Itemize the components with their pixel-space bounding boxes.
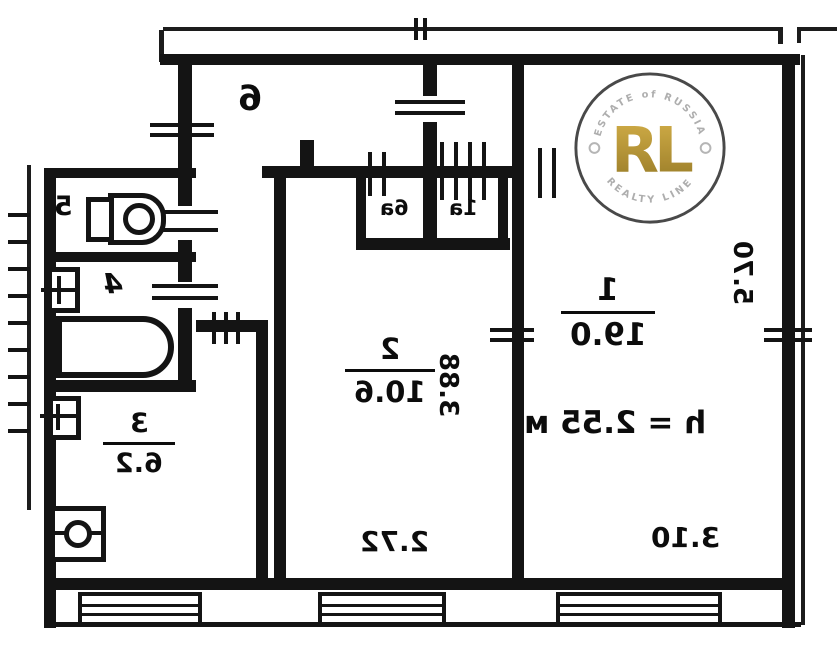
closet-6a-label: 6a bbox=[370, 198, 418, 219]
window-kitchen bbox=[78, 592, 202, 626]
context-line-top bbox=[163, 27, 780, 31]
hatch-tick bbox=[8, 294, 30, 298]
window-glazing-line bbox=[560, 604, 718, 607]
fraction-bar bbox=[345, 369, 435, 372]
toilet-tank bbox=[86, 197, 114, 242]
hatch-tick bbox=[8, 267, 30, 271]
fraction-bar bbox=[561, 311, 655, 314]
realty-line-watermark: ESTATE of RUSSIA REALTY LINE RL bbox=[572, 70, 728, 230]
room1-height-note: h = 2.55 м bbox=[512, 408, 718, 439]
hatch-tick bbox=[8, 321, 30, 325]
window-glazing-line bbox=[82, 604, 198, 607]
entrance-door-hatch bbox=[395, 100, 465, 104]
wall-stub bbox=[300, 140, 314, 166]
closet-vent-hatch bbox=[368, 152, 372, 196]
hatch-tick bbox=[8, 348, 30, 352]
closet-vent-hatch bbox=[468, 142, 472, 200]
wall-tick bbox=[764, 328, 812, 332]
wall-room2-top bbox=[262, 166, 512, 178]
bath-door-hatch bbox=[152, 284, 218, 288]
hatch-tick bbox=[8, 240, 30, 244]
room2-area: 10.6 bbox=[340, 375, 440, 409]
wall-block-bottom bbox=[44, 380, 196, 392]
bathtub bbox=[56, 316, 174, 378]
entrance-door-hatch bbox=[395, 111, 465, 115]
window-glazing-line bbox=[322, 613, 442, 616]
bath-door-hatch bbox=[152, 296, 218, 300]
top-line-tick bbox=[414, 18, 418, 40]
wall-bottom bbox=[44, 578, 795, 590]
hatch-tick bbox=[8, 213, 30, 217]
wall-room1-left bbox=[512, 64, 524, 578]
closet-vent-hatch bbox=[482, 142, 486, 200]
kitchen-area-fraction: 3 6.2 bbox=[98, 408, 180, 479]
top-line-tick bbox=[423, 18, 427, 40]
wall-kitchen-top bbox=[196, 320, 268, 332]
closet-vent-hatch bbox=[440, 142, 444, 200]
room1-area-fraction: 1 19.0 bbox=[558, 272, 658, 353]
kitchen-door-hatch bbox=[224, 312, 228, 344]
stove-burner bbox=[64, 520, 92, 548]
bath-sink-cross bbox=[57, 276, 61, 304]
wall-kitchen-right bbox=[256, 332, 268, 578]
closet-1a-label: 1a bbox=[440, 198, 486, 219]
kitchen-sink bbox=[48, 396, 81, 440]
bathroom-number-label: 4 bbox=[96, 270, 130, 298]
context-line-top-right bbox=[797, 27, 837, 31]
hatch-tick bbox=[8, 402, 30, 406]
wall-closet-bottom bbox=[356, 238, 510, 250]
watermark-monogram: RL bbox=[611, 113, 693, 186]
hatch-tick bbox=[8, 429, 30, 433]
context-line-top-hook bbox=[778, 27, 783, 44]
fraction-bar bbox=[103, 442, 175, 445]
kitchen-door-hatch bbox=[212, 312, 216, 344]
wall-tick bbox=[764, 338, 812, 342]
kitchen-area: 6.2 bbox=[98, 448, 180, 479]
window-room2 bbox=[318, 592, 446, 626]
kitchen-number: 3 bbox=[98, 408, 180, 439]
wall-closet-divider bbox=[423, 122, 437, 250]
wall-block-top bbox=[44, 168, 196, 178]
kitchen-sink-cross bbox=[56, 404, 60, 430]
room2-number: 2 bbox=[340, 332, 440, 366]
room1-depth-dim: 5.70 bbox=[722, 218, 762, 328]
window-room1 bbox=[556, 592, 722, 626]
vent-hatch bbox=[150, 123, 214, 127]
room2-area-fraction: 2 10.6 bbox=[340, 332, 440, 409]
window-glazing-line bbox=[560, 613, 718, 616]
room1-number: 1 bbox=[558, 272, 658, 308]
window-glazing-line bbox=[82, 613, 198, 616]
wc-number-label: 5 bbox=[48, 193, 78, 220]
floorplan-canvas: 6 5 4 6a 1a 2 10.6 3.88 1 19.0 h = 2.55 … bbox=[0, 0, 837, 650]
room1-width-dim: 3.10 bbox=[636, 524, 736, 552]
window-glazing-line bbox=[322, 604, 442, 607]
wall-wc-bath-divider bbox=[44, 252, 196, 262]
watermark-svg: ESTATE of RUSSIA REALTY LINE RL bbox=[572, 70, 728, 226]
wall-closet-divider-upper bbox=[423, 64, 437, 96]
wall-block-right-upper bbox=[178, 54, 192, 206]
wall-tick bbox=[490, 328, 534, 332]
closet-vent-hatch bbox=[382, 152, 386, 196]
closet-vent-hatch bbox=[454, 142, 458, 200]
wall-top bbox=[160, 54, 800, 65]
room1-area: 19.0 bbox=[558, 317, 658, 353]
hall-number-label: 6 bbox=[228, 82, 272, 117]
wall-room2-left bbox=[274, 166, 286, 578]
kitchen-door-hatch bbox=[236, 312, 240, 344]
wall-tick bbox=[490, 338, 534, 342]
room1-vent-hatch bbox=[538, 148, 542, 198]
hatch-tick bbox=[8, 375, 30, 379]
context-line-top-right-hook bbox=[797, 27, 801, 43]
room2-depth-dim: 3.88 bbox=[430, 338, 466, 432]
room2-width-dim: 2.72 bbox=[342, 528, 448, 556]
room1-vent-hatch bbox=[552, 148, 556, 198]
toilet-bowl-circle bbox=[123, 203, 155, 235]
vent-hatch bbox=[150, 133, 214, 137]
